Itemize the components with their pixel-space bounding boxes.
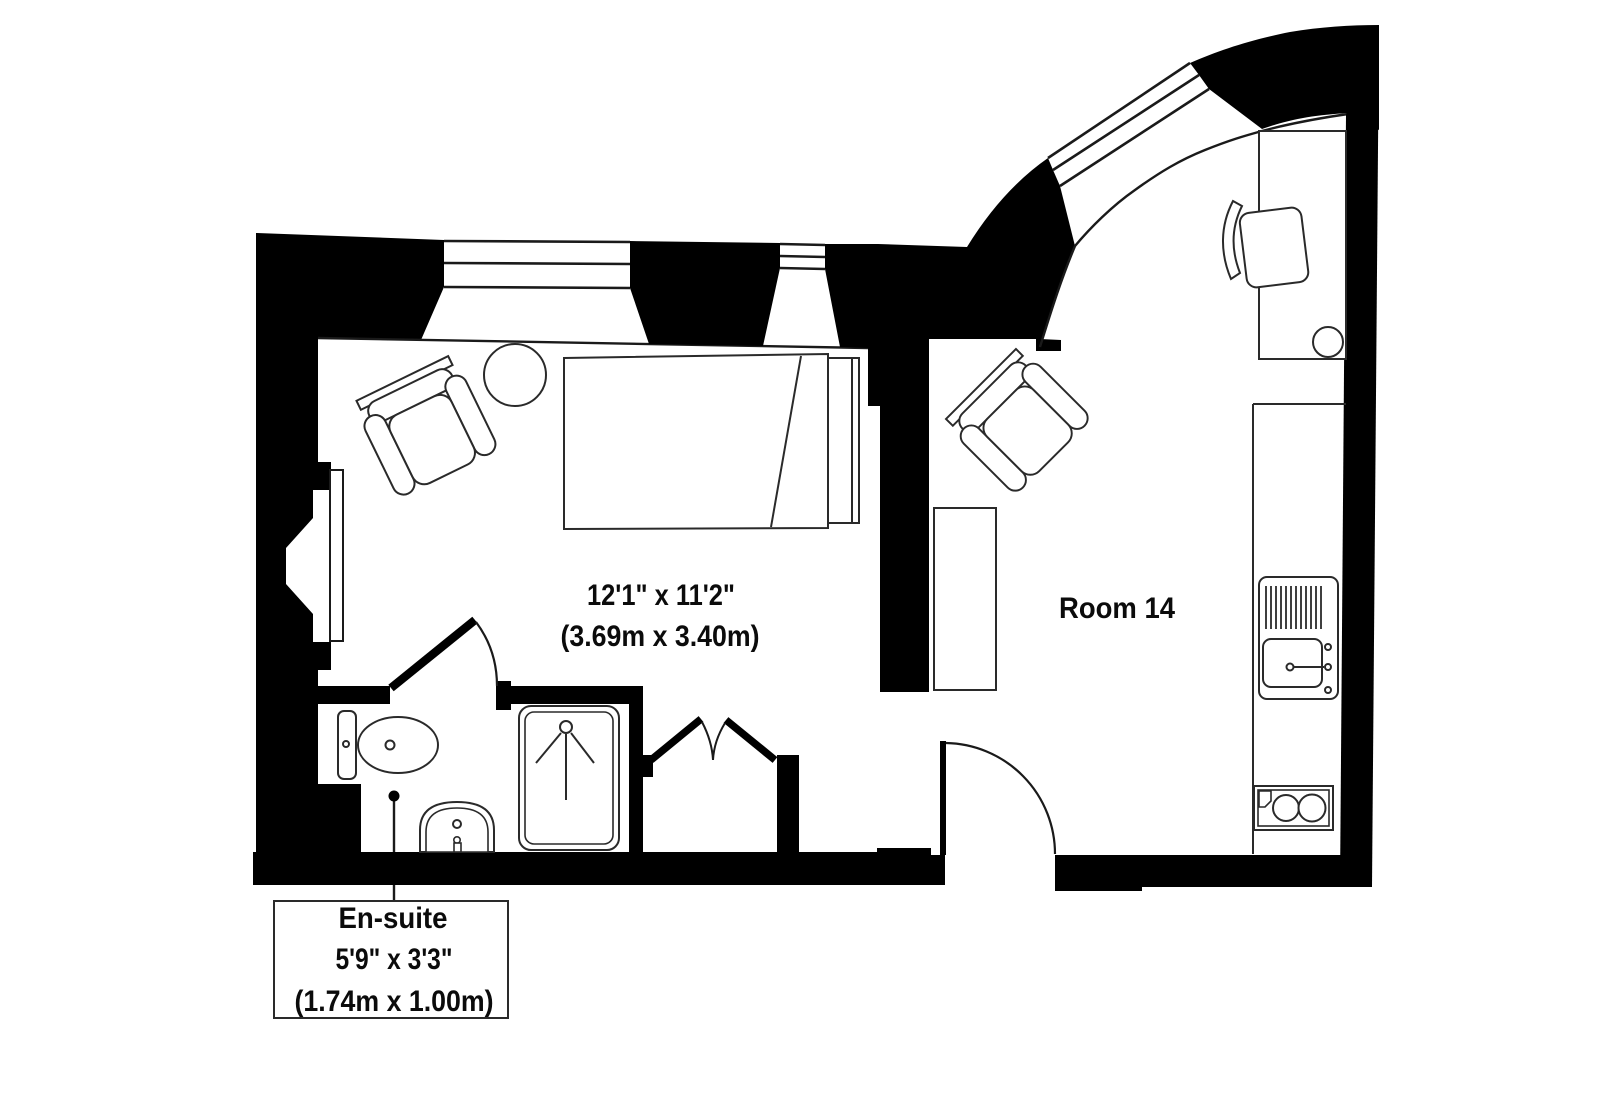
svg-text:En-suite: En-suite (339, 902, 448, 935)
svg-text:(3.69m x 3.40m): (3.69m x 3.40m) (561, 620, 760, 653)
svg-text:(1.74m x 1.00m): (1.74m x 1.00m) (295, 985, 494, 1018)
svg-text:12'1" x 11'2": 12'1" x 11'2" (587, 579, 735, 612)
svg-text:5'9" x 3'3": 5'9" x 3'3" (336, 943, 453, 976)
svg-text:Room 14: Room 14 (1059, 592, 1175, 625)
